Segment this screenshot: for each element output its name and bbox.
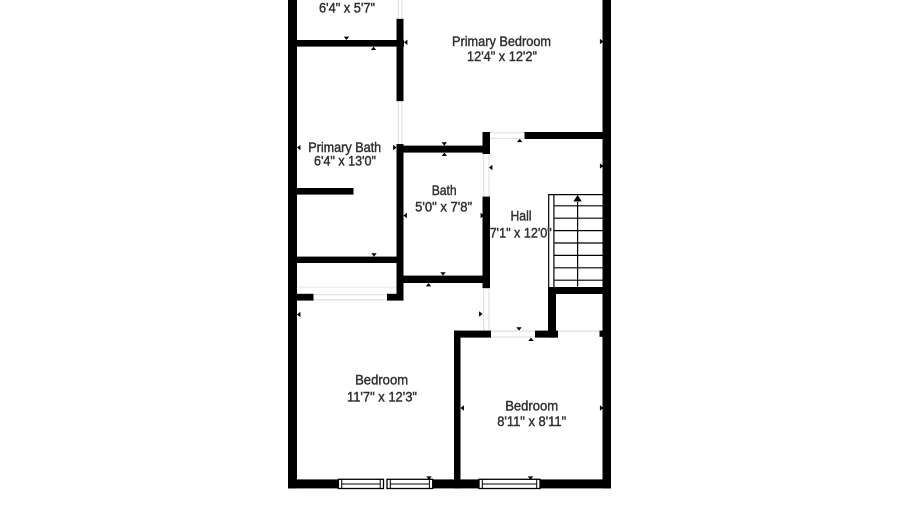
svg-text:Hall: Hall: [511, 207, 532, 223]
svg-text:7'1" x 12'0": 7'1" x 12'0": [490, 225, 552, 240]
svg-text:8'11" x 8'11": 8'11" x 8'11": [497, 414, 566, 429]
svg-text:Bath: Bath: [432, 182, 457, 198]
svg-text:11'7" x 12'3": 11'7" x 12'3": [347, 390, 417, 405]
svg-text:Bedroom: Bedroom: [355, 371, 408, 387]
svg-text:Bedroom: Bedroom: [505, 398, 558, 414]
svg-text:12'4" x 12'2": 12'4" x 12'2": [467, 49, 537, 64]
svg-text:6'4" x 5'7": 6'4" x 5'7": [319, 1, 375, 16]
svg-text:5'0" x 7'8": 5'0" x 7'8": [415, 199, 472, 214]
svg-text:6'4" x 13'0": 6'4" x 13'0": [314, 154, 376, 169]
svg-text:Primary Bedroom: Primary Bedroom: [452, 33, 551, 49]
